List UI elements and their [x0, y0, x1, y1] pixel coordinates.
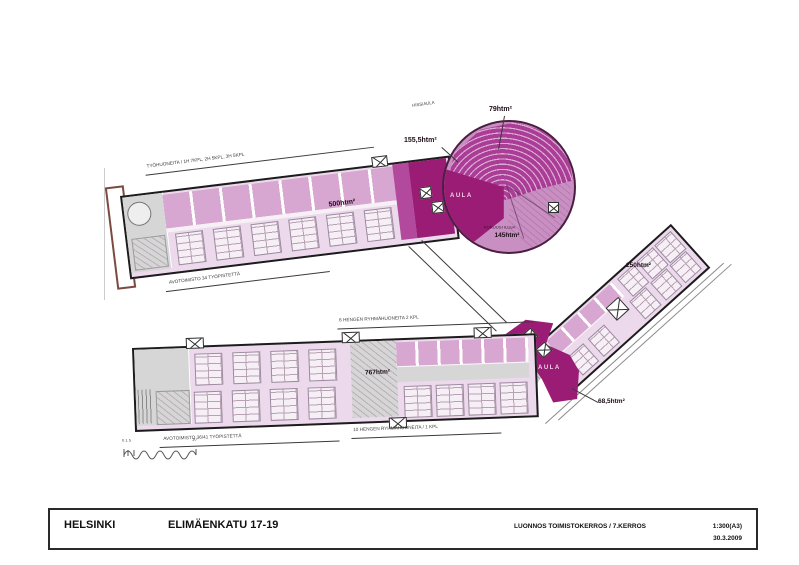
rotunda: KOKOUSTILOJA 145htm²	[442, 120, 576, 254]
core-area-label: 155,5htm²	[404, 137, 437, 144]
desk-cluster	[500, 382, 529, 415]
auditorium-area-label: 79htm²	[489, 106, 512, 113]
scale-bar-left-ticks: 0 1 5	[122, 439, 131, 443]
shaft-icon	[186, 337, 204, 349]
desk-cluster	[308, 349, 337, 382]
group-rooms-note: 6 HENGEN RYHMÄHUONEITA 2 KPL	[339, 315, 419, 323]
desk-cluster	[194, 353, 223, 386]
dimension-line	[351, 433, 501, 439]
desk-cluster	[270, 350, 299, 383]
elevator-note: HISSIAULA	[412, 101, 435, 108]
title-scale: 1:300(A3)	[713, 523, 742, 530]
desk-cluster	[270, 388, 299, 421]
east-wing-area-label: 250htm²	[626, 262, 651, 269]
dimension-line	[337, 321, 533, 329]
meeting-note: KOKOUSTILOJA	[484, 226, 515, 230]
title-drawing: LUONNOS TOIMISTOKERROS / 7.KERROS	[514, 523, 646, 530]
desk-cluster	[232, 389, 261, 422]
desk-cluster	[288, 216, 320, 251]
title-address: ELIMÄENKATU 17-19	[168, 519, 278, 531]
desk-cluster	[308, 387, 337, 420]
desk-cluster	[194, 391, 223, 424]
desk-cluster	[436, 384, 465, 417]
title-date: 30.3.2009	[713, 535, 742, 542]
desk-cluster	[404, 385, 433, 418]
elevator-icon	[431, 201, 444, 214]
scale-bar: 0 1 5 10	[122, 440, 206, 462]
desk-cluster	[364, 207, 396, 242]
desk-cluster	[468, 383, 497, 416]
rotunda-lobby-label: AULA	[450, 193, 473, 199]
south-wing: 767htm² 6 HENGEN RYHMÄHUONEITA 2 KPL AVO…	[132, 333, 539, 432]
north-wing-rooms-note: TYÖHUONEITA / 1H 7KPL, 2H 5KPL, 3H 5KPL	[146, 153, 244, 170]
terrace-area-label: 68,5htm²	[598, 398, 625, 405]
group-rooms-band	[396, 337, 529, 367]
scale-bar-right-tick: 10	[192, 438, 197, 442]
desk-cluster	[213, 226, 245, 261]
scale-squiggle	[122, 445, 206, 461]
shaft-icon	[342, 332, 360, 344]
desk-cluster	[588, 324, 620, 357]
desk-cluster	[232, 351, 261, 384]
elevator-icon	[548, 202, 559, 213]
wc-block	[131, 235, 169, 271]
group-rooms-note-2: 10 HENGEN RYHMÄHUONEITA / 1 KPL	[353, 425, 438, 433]
wc-block	[156, 390, 191, 425]
break-area	[350, 340, 399, 418]
floor-plan-sheet: 500htm² TYÖHUONEITA / 1H 7KPL, 2H 5KPL, …	[0, 0, 799, 565]
stair-icon	[138, 389, 153, 423]
desk-cluster	[175, 230, 207, 265]
north-wing: 500htm² TYÖHUONEITA / 1H 7KPL, 2H 5KPL, …	[120, 156, 460, 280]
south-wing-area-label: 767htm²	[365, 369, 390, 377]
desk-cluster	[250, 221, 282, 256]
title-city: HELSINKI	[64, 519, 115, 531]
meeting-area-label: 145htm²	[472, 232, 542, 239]
shaft-icon	[371, 155, 388, 168]
desk-cluster	[326, 212, 358, 247]
elevator-icon	[419, 186, 432, 199]
title-block: HELSINKI ELIMÄENKATU 17-19 LUONNOS TOIMI…	[48, 508, 758, 550]
shaft-icon	[473, 327, 491, 339]
south-lobby-label: AULA	[538, 365, 561, 371]
corridor-line	[408, 246, 496, 331]
